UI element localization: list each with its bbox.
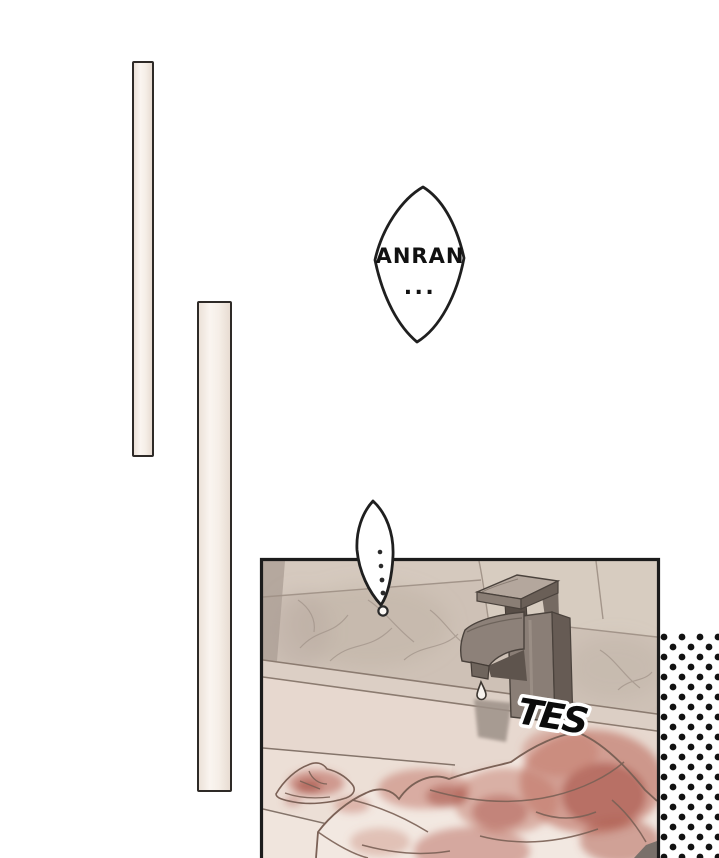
bathroom-panel-illustration: TES (250, 495, 719, 858)
pause-bubble-tail-dot (378, 606, 387, 615)
page-canvas: ANRAN ... (0, 0, 719, 858)
faucet-shadow (474, 699, 512, 742)
panel-spacer-bar-2 (197, 301, 232, 792)
anran-bubble-ellipsis: ... (404, 275, 437, 300)
panel-interior: TES (263, 561, 664, 858)
anran-bubble-text: ANRAN (376, 244, 465, 268)
halftone-dots (660, 633, 719, 858)
panel-spacer-bar-1 (132, 61, 154, 457)
anran-speech-bubble: ANRAN ... (363, 178, 475, 350)
